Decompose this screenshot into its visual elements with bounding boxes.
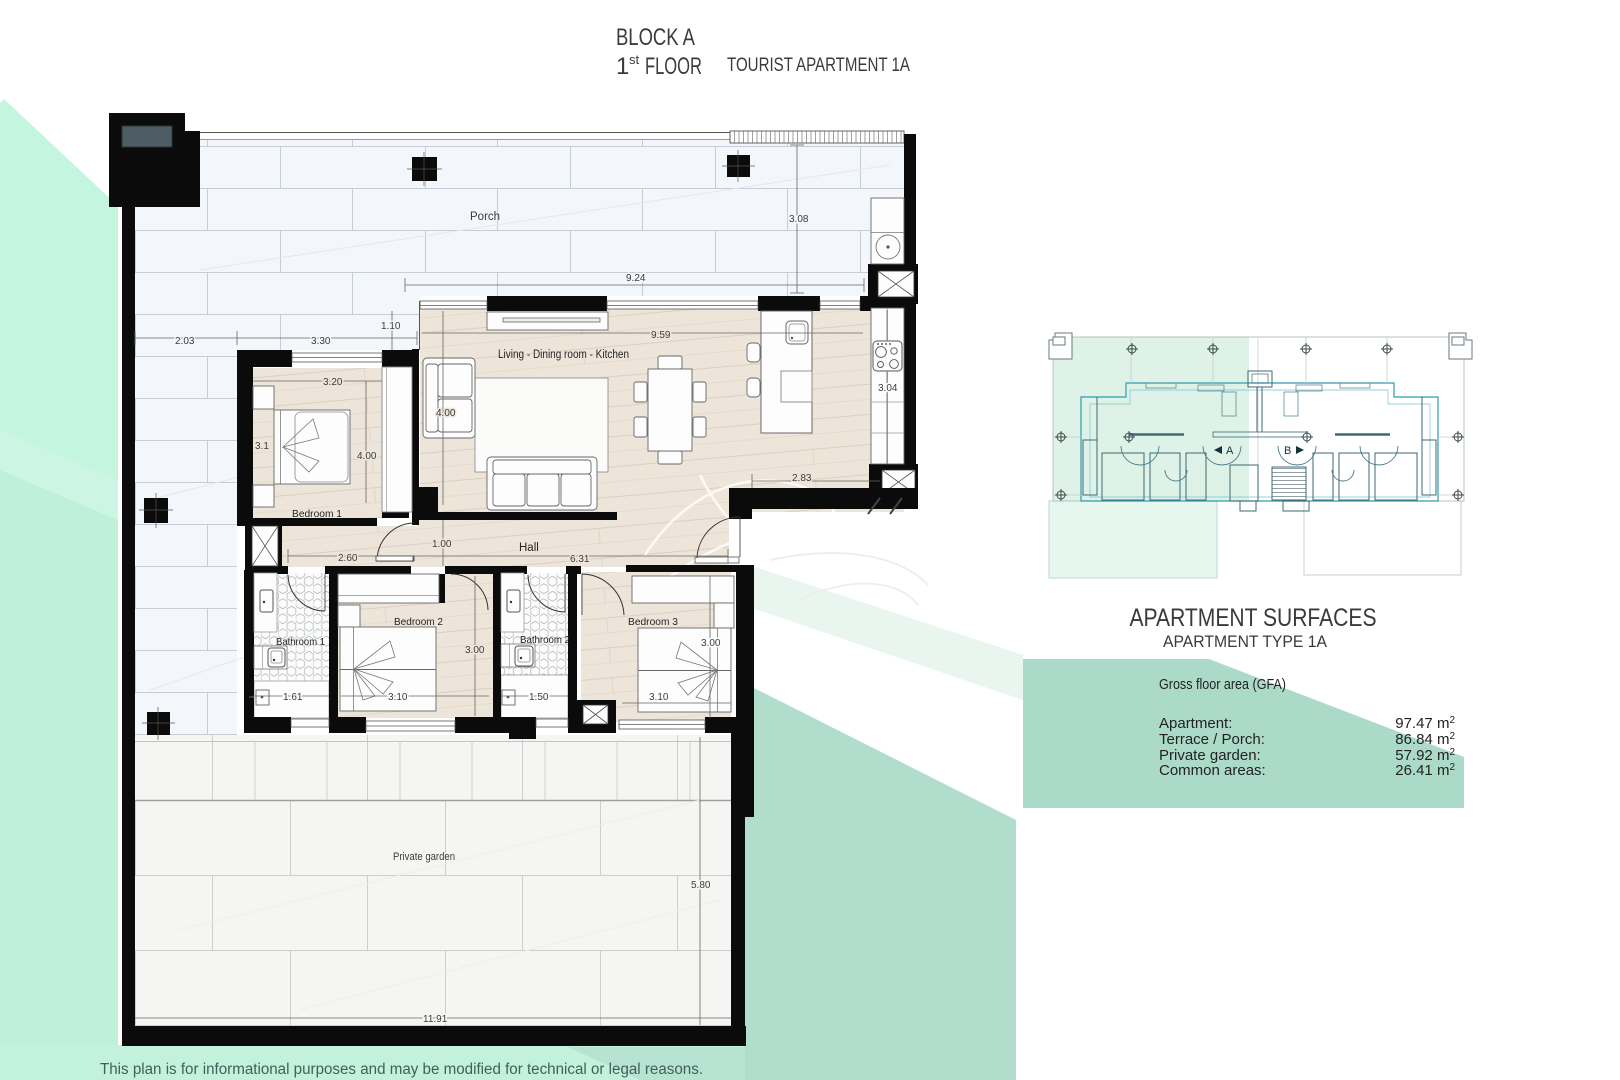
svg-text:3.1: 3.1	[255, 441, 269, 452]
svg-text:B: B	[1284, 445, 1291, 457]
svg-text:3.10: 3.10	[649, 692, 669, 703]
svg-text:1.00: 1.00	[432, 539, 452, 550]
svg-text:Porch: Porch	[470, 211, 500, 223]
svg-text:3.10: 3.10	[388, 692, 408, 703]
svg-text:4.00: 4.00	[436, 408, 456, 419]
svg-text:TOURIST APARTMENT 1A: TOURIST APARTMENT 1A	[727, 55, 910, 76]
svg-text:1.10: 1.10	[381, 321, 401, 332]
svg-text:1.61: 1.61	[283, 692, 303, 703]
svg-text:Gross floor area (GFA): Gross floor area (GFA)	[1159, 676, 1286, 693]
svg-text:2.03: 2.03	[175, 336, 195, 347]
svg-text:This plan is for informational: This plan is for informational purposes …	[100, 1061, 703, 1078]
svg-text:Apartment:: Apartment:	[1159, 715, 1232, 732]
svg-text:FLOOR: FLOOR	[645, 53, 702, 80]
svg-text:APARTMENT SURFACES: APARTMENT SURFACES	[1130, 604, 1377, 632]
svg-text:2.83: 2.83	[792, 473, 812, 484]
svg-text:Private garden: Private garden	[393, 851, 455, 863]
svg-text:4.00: 4.00	[357, 451, 377, 462]
svg-text:Living - Dining room - Kitchen: Living - Dining room - Kitchen	[498, 349, 629, 361]
svg-text:Bathroom 2: Bathroom 2	[520, 635, 570, 646]
svg-text:2.60: 2.60	[338, 553, 358, 564]
svg-text:97.47 m2: 97.47 m2	[1395, 715, 1455, 732]
svg-text:3.20: 3.20	[323, 377, 343, 388]
svg-text:86.84 m2: 86.84 m2	[1395, 731, 1455, 748]
svg-text:BLOCK A: BLOCK A	[616, 24, 695, 51]
svg-text:11.91: 11.91	[423, 1014, 448, 1025]
svg-text:Bathroom 1: Bathroom 1	[276, 637, 325, 648]
svg-text:26.41 m2: 26.41 m2	[1395, 762, 1455, 779]
svg-text:3.08: 3.08	[789, 214, 809, 225]
svg-text:3.30: 3.30	[311, 336, 331, 347]
svg-text:Bedroom 3: Bedroom 3	[628, 616, 678, 628]
svg-text:Hall: Hall	[519, 542, 539, 554]
svg-text:3.00: 3.00	[465, 645, 485, 656]
svg-text:5.80: 5.80	[691, 880, 711, 891]
svg-text:A: A	[1226, 445, 1234, 457]
svg-text:Bedroom 1: Bedroom 1	[292, 508, 342, 520]
svg-text:6.31: 6.31	[570, 554, 590, 565]
svg-text:3.04: 3.04	[878, 383, 898, 394]
svg-text:APARTMENT TYPE 1A: APARTMENT TYPE 1A	[1163, 632, 1328, 651]
svg-text:Terrace / Porch:: Terrace / Porch:	[1159, 731, 1265, 748]
svg-text:9.24: 9.24	[626, 273, 646, 284]
svg-text:9.59: 9.59	[651, 330, 671, 341]
svg-text:st: st	[629, 52, 640, 67]
svg-text:1.50: 1.50	[529, 692, 549, 703]
svg-text:Common areas:: Common areas:	[1159, 762, 1266, 779]
svg-text:1: 1	[616, 53, 629, 80]
svg-text:Bedroom 2: Bedroom 2	[394, 616, 443, 628]
svg-text:3.00: 3.00	[701, 638, 721, 649]
